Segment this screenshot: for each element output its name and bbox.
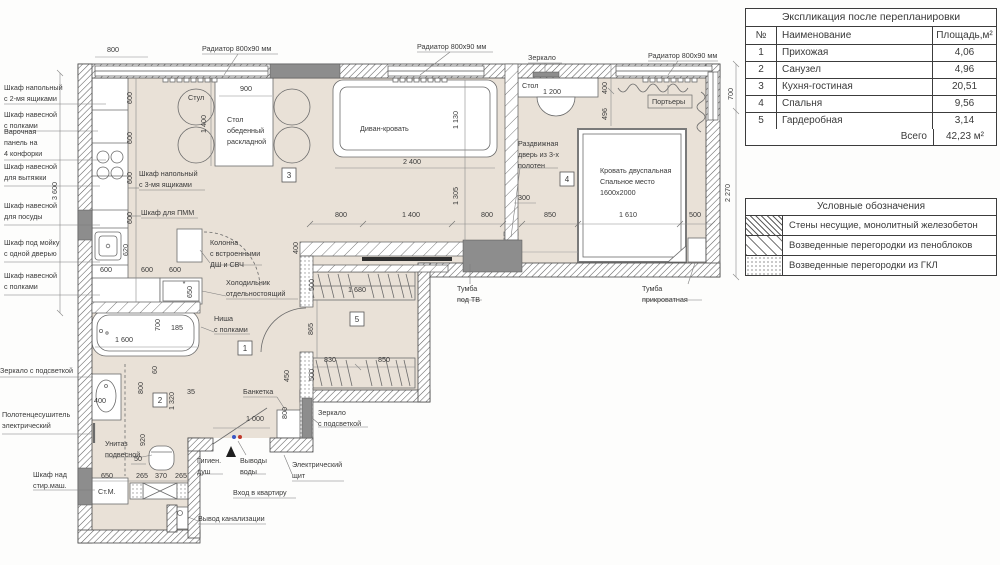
- table-cell: Гардеробная: [777, 113, 933, 129]
- plan-label: Портьеры: [652, 97, 685, 106]
- dimension-label: 60: [150, 366, 159, 374]
- lower-counter: [92, 278, 160, 304]
- dimension-label: 800: [280, 407, 289, 419]
- dimension-label: 800: [481, 210, 493, 219]
- dimension-label: 2 400: [403, 157, 421, 166]
- plan-label: Стул: [188, 93, 204, 102]
- plan-label: Шкаф надстир.маш.: [33, 470, 68, 490]
- dimension-label: 3 600: [50, 182, 59, 200]
- plan-label: Радиатор 800х90 мм: [417, 42, 486, 51]
- sw-light-swatch: [746, 236, 783, 255]
- plan-label: Шкаф навеснойдля посуды: [4, 201, 57, 221]
- dimension-label: 1 200: [543, 87, 561, 96]
- tv: [362, 257, 452, 261]
- dimension-label: 496: [600, 108, 609, 120]
- dimension-label: 850: [378, 355, 390, 364]
- table-cell: Кухня-гостиная: [777, 79, 933, 95]
- dimension-label: 600: [125, 212, 134, 224]
- table-body: 1Прихожая4,062Санузел4,963Кухня-гостиная…: [746, 45, 996, 129]
- legend-row: Возведенные перегородки из пеноблоков: [746, 236, 996, 256]
- dimension-label: 865: [306, 323, 315, 335]
- dimension-label: 400: [291, 242, 300, 254]
- table-cell: 1: [746, 45, 777, 61]
- dimension-label: 600: [169, 265, 181, 274]
- legend-body: Стены несущие, монолитный железобетонВоз…: [746, 216, 996, 275]
- plan-label: Диван-кровать: [360, 124, 409, 133]
- dimension-label: 650: [101, 471, 113, 480]
- plan-label: Вывод канализации: [198, 514, 265, 523]
- plan-label: Зеркало с подсветкой: [0, 366, 73, 375]
- dimension-label: 600: [141, 265, 153, 274]
- table-header-name: Наименование: [777, 27, 933, 44]
- dimension-label: 700: [153, 319, 162, 331]
- plan-label: Выводыводы: [240, 456, 267, 476]
- table-cell: 3: [746, 79, 777, 95]
- plan-label: Гигиен.душ: [197, 456, 221, 476]
- dimension-label: 830: [324, 355, 336, 364]
- dimension-label: 700: [726, 88, 735, 100]
- dimension-label: 1 680: [348, 285, 366, 294]
- table-total-row: Всего 42,23 м²: [746, 129, 996, 145]
- plan-label: Шкаф напольныйс 2-мя ящиками: [4, 83, 63, 103]
- dimension-label: 800: [107, 45, 119, 54]
- table-cell: Спальня: [777, 96, 933, 112]
- dimension-label: 370: [155, 471, 167, 480]
- dimension-label: 1 130: [451, 111, 460, 129]
- appliance-column: [177, 229, 202, 262]
- sw-dots-swatch: [746, 256, 783, 275]
- dimension-label: 600: [125, 172, 134, 184]
- room-number: 5: [355, 315, 360, 324]
- table-header-num: №: [746, 27, 777, 44]
- plan-label: Шкаф навеснойс полками: [4, 271, 57, 291]
- legend-label: Стены несущие, монолитный железобетон: [783, 216, 996, 235]
- legend: Условные обозначения Стены несущие, моно…: [745, 198, 997, 276]
- hall-mirror: [302, 398, 312, 438]
- table-header-row: № Наименование Площадь,м²: [746, 27, 996, 45]
- plan-label: Зеркало: [528, 53, 556, 62]
- plan-label: Вход в квартиру: [233, 488, 287, 497]
- plan-label: Радиатор 800х90 мм: [648, 51, 717, 60]
- entry-arrow: [226, 446, 236, 457]
- shaft-2: [78, 468, 92, 505]
- dimension-label: 800: [335, 210, 347, 219]
- desk-mirror: [533, 72, 559, 77]
- plan-label: Стол: [522, 81, 538, 90]
- dimension-label: 1 305: [451, 187, 460, 205]
- dimension-label: 1 400: [199, 115, 208, 133]
- table-cell: 9,56: [933, 96, 996, 112]
- plan-label: Шкаф под мойкус одной дверью: [4, 238, 60, 258]
- plan-label: Ст.М.: [98, 487, 116, 496]
- plan-label: Варочнаяпанель на4 конфорки: [4, 127, 42, 158]
- table-total-value: 42,23 м²: [934, 129, 996, 145]
- table-row: 3Кухня-гостиная20,51: [746, 79, 996, 96]
- room-number: 3: [287, 171, 292, 180]
- sw-dense-swatch: [746, 216, 783, 235]
- table-cell: 3,14: [933, 113, 996, 129]
- tv-stand: [463, 240, 522, 272]
- dimension-label: 900: [240, 84, 252, 93]
- dimension-label: *: [183, 279, 186, 288]
- hot-water-point: [238, 435, 242, 439]
- legend-title: Условные обозначения: [746, 199, 996, 216]
- dimension-label: 1 400: [402, 210, 420, 219]
- dimension-label: 400: [600, 82, 609, 94]
- table-cell: 4,96: [933, 62, 996, 78]
- dimension-label: 1 320: [167, 392, 176, 410]
- dimension-label: 400: [94, 396, 106, 405]
- room-number: 2: [158, 396, 163, 405]
- sofa-bed: [333, 80, 497, 157]
- dimension-label: 300: [518, 193, 530, 202]
- table-title: Экспликация после перепланировки: [746, 9, 996, 27]
- legend-row: Стены несущие, монолитный железобетон: [746, 216, 996, 236]
- legend-label: Возведенные перегородки из пеноблоков: [783, 236, 996, 255]
- table-total-label: Всего: [746, 129, 934, 145]
- dimension-label: 650: [185, 286, 194, 298]
- table-cell: 20,51: [933, 79, 996, 95]
- dimension-label: 450: [282, 370, 291, 382]
- dimension-label: 1 600: [115, 335, 133, 344]
- table-row: 5Гардеробная3,14: [746, 113, 996, 129]
- wall-pier: [270, 64, 340, 78]
- plan-label: Полотенцесушительэлектрический: [2, 410, 70, 430]
- table-row: 4Спальня9,56: [746, 96, 996, 113]
- table-cell: 5: [746, 113, 777, 129]
- dimension-label: 620: [121, 244, 130, 256]
- table-cell: Прихожая: [777, 45, 933, 61]
- plan-label: Электрическийщит: [292, 460, 342, 480]
- table-header-area: Площадь,м²: [933, 27, 996, 44]
- legend-row: Возведенные перегородки из ГКЛ: [746, 256, 996, 275]
- plan-label: Радиатор 800х90 мм: [202, 44, 271, 53]
- plan-label: Шкаф для ПММ: [141, 208, 194, 217]
- dimension-label: 2 270: [723, 184, 732, 202]
- table-cell: 4,06: [933, 45, 996, 61]
- table-row: 1Прихожая4,06: [746, 45, 996, 62]
- dimension-label: 600: [125, 132, 134, 144]
- plan-label: Тумбаприкроватная: [642, 284, 688, 304]
- plan-label: Тумбапод ТВ: [457, 284, 480, 304]
- room-number: 1: [243, 344, 248, 353]
- table-cell: Санузел: [777, 62, 933, 78]
- toilet: [149, 446, 174, 470]
- table-cell: 4: [746, 96, 777, 112]
- dimension-label: 1 000: [246, 414, 264, 423]
- dimension-label: 500: [689, 210, 701, 219]
- plan-label: Шкаф навеснойдля вытяжки: [4, 162, 57, 182]
- dimension-label: 800: [136, 382, 145, 394]
- floor-plan-sheet: 8009001 4002 4001 1301 2004004967002 270…: [0, 0, 1000, 565]
- table-cell: 2: [746, 62, 777, 78]
- cold-water-point: [232, 435, 236, 439]
- dimension-label: 1 610: [619, 210, 637, 219]
- dimension-label: 35: [187, 387, 195, 396]
- plan-label: Банкетка: [243, 387, 273, 396]
- plan-label: Зеркалос подсветкой: [318, 408, 361, 428]
- explication-table: Экспликация после перепланировки № Наиме…: [745, 8, 997, 146]
- fridge: [160, 278, 202, 304]
- dimension-label: 185: [171, 323, 183, 332]
- dimension-label: 500: [307, 279, 316, 291]
- nightstand: [688, 238, 706, 262]
- room-number: 4: [565, 175, 570, 184]
- dimension-label: 600: [125, 92, 134, 104]
- dimension-label: 265: [175, 471, 187, 480]
- dimension-label: 600: [100, 265, 112, 274]
- dimension-label: 265: [136, 471, 148, 480]
- dimension-label: 500: [307, 369, 316, 381]
- table-row: 2Санузел4,96: [746, 62, 996, 79]
- dimension-label: 850: [544, 210, 556, 219]
- dimension-label: 920: [138, 434, 147, 446]
- legend-label: Возведенные перегородки из ГКЛ: [783, 256, 996, 275]
